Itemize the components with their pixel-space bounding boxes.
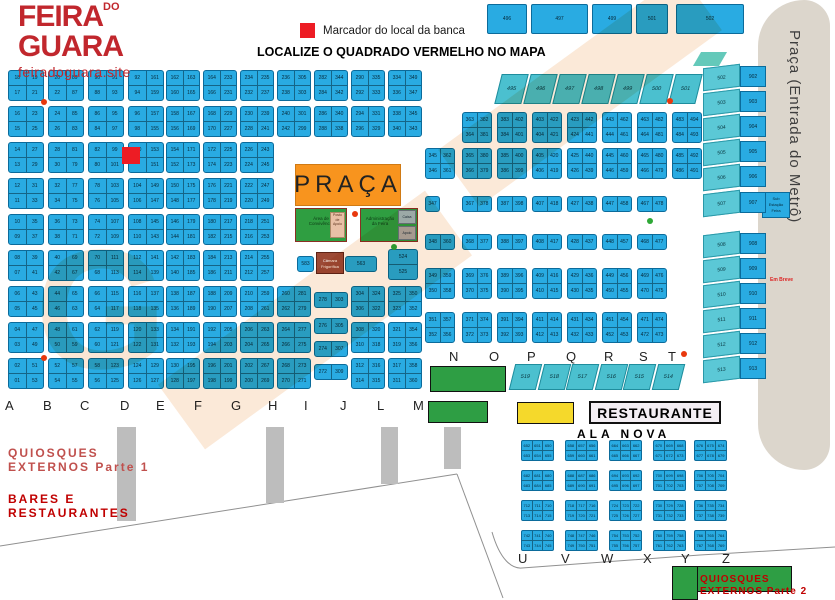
stall-cell[interactable]: 172 bbox=[204, 143, 220, 157]
stall-cell[interactable]: 329 bbox=[368, 122, 385, 136]
stall-cell[interactable]: 727 bbox=[630, 511, 641, 520]
stall-cell[interactable]: 312 bbox=[352, 359, 368, 373]
stall-cell[interactable]: 681 bbox=[532, 471, 543, 480]
stall-cell[interactable]: 83 bbox=[66, 122, 84, 136]
stall-cell[interactable]: 57 bbox=[66, 359, 84, 373]
stall-cell[interactable]: 467 bbox=[638, 197, 652, 211]
stall-cell[interactable]: 405 bbox=[533, 149, 547, 163]
stall-cell[interactable]: 680 bbox=[542, 471, 553, 480]
stall-cell[interactable]: 662 bbox=[630, 441, 641, 450]
stall-cell[interactable]: 53 bbox=[26, 374, 44, 388]
stall-cell[interactable]: 214 bbox=[241, 251, 257, 265]
stall-cell[interactable]: 728 bbox=[674, 501, 685, 510]
stall-cell[interactable]: 322 bbox=[368, 302, 385, 316]
stall-cell[interactable]: 342 bbox=[331, 86, 348, 100]
stall-cell[interactable]: 12 bbox=[9, 179, 26, 193]
stall-cell[interactable]: 338 bbox=[389, 107, 405, 121]
stall-cell[interactable]: 129 bbox=[146, 359, 164, 373]
stall-cell[interactable]: 56 bbox=[89, 374, 106, 388]
stall-cell[interactable]: 501 bbox=[636, 4, 668, 34]
stall-cell[interactable]: 41 bbox=[26, 266, 44, 280]
stall-cell[interactable]: 475 bbox=[652, 284, 667, 298]
stall-block[interactable]: 471474472473 bbox=[637, 312, 667, 343]
stall-cell[interactable]: 904 bbox=[740, 116, 766, 137]
stall-block[interactable]: 120133122131 bbox=[128, 322, 164, 353]
stall-cell[interactable]: 228 bbox=[241, 122, 257, 136]
stall-cell[interactable]: 196 bbox=[204, 359, 220, 373]
stall-cell[interactable]: 661 bbox=[586, 451, 597, 460]
stall-block[interactable]: 338345340343 bbox=[388, 106, 422, 137]
stall-cell[interactable]: 460 bbox=[617, 149, 632, 163]
stall-block[interactable]: 829980101 bbox=[88, 142, 124, 173]
stall-cell[interactable]: 44 bbox=[49, 287, 66, 301]
stall-block[interactable]: 180217182215 bbox=[203, 214, 237, 245]
stall-cell[interactable]: 484 bbox=[673, 128, 687, 142]
stall-cell[interactable]: 364 bbox=[463, 128, 477, 142]
stall-cell[interactable]: 671 bbox=[654, 451, 664, 460]
stall-cell[interactable]: 146 bbox=[167, 215, 183, 229]
stall-block[interactable]: 278303 bbox=[314, 292, 348, 308]
stall-cell[interactable]: 95 bbox=[106, 107, 124, 121]
stall-block[interactable]: 403422404421 bbox=[532, 112, 562, 143]
stall-cell[interactable]: 276 bbox=[315, 319, 331, 333]
stall-cell[interactable]: 700 bbox=[654, 471, 664, 480]
stall-block[interactable]: 694693692695696697 bbox=[609, 470, 642, 491]
stall-block[interactable]: 388397 bbox=[497, 234, 527, 250]
stall-cell[interactable]: 512 bbox=[703, 331, 740, 359]
stall-cell[interactable]: 167 bbox=[183, 107, 200, 121]
stall-cell[interactable]: 472 bbox=[638, 328, 652, 342]
stall-block[interactable]: 158167156169 bbox=[166, 106, 200, 137]
stall-block[interactable]: 485492486491 bbox=[672, 148, 702, 179]
stall-cell[interactable]: 524 bbox=[389, 250, 417, 264]
stall-cell[interactable]: 281 bbox=[294, 287, 311, 301]
stall-cell[interactable]: 29 bbox=[26, 158, 44, 172]
stall-cell[interactable]: 317 bbox=[389, 359, 405, 373]
stall-cell[interactable]: 694 bbox=[610, 471, 620, 480]
stall-cell[interactable]: 13 bbox=[9, 158, 26, 172]
stall-cell[interactable]: 907 bbox=[740, 192, 766, 213]
stall-cell[interactable]: 439 bbox=[582, 164, 597, 178]
stall-cell[interactable]: 741 bbox=[532, 531, 543, 540]
stall-cell[interactable]: 23 bbox=[26, 107, 44, 121]
stall-cell[interactable]: 505 bbox=[703, 139, 740, 167]
stall-cell[interactable]: 465 bbox=[638, 149, 652, 163]
stall-block[interactable]: 700699698701702703 bbox=[653, 470, 686, 491]
stall-block[interactable]: 86958497 bbox=[88, 106, 124, 137]
stall-cell[interactable]: 408 bbox=[533, 235, 547, 249]
stall-cell[interactable]: 288 bbox=[315, 122, 331, 136]
stall-block[interactable]: 349359350358 bbox=[425, 268, 455, 299]
stall-cell[interactable]: 448 bbox=[603, 235, 617, 249]
stall-cell[interactable]: 673 bbox=[674, 451, 685, 460]
stall-block[interactable]: 427438 bbox=[567, 196, 597, 212]
stall-block[interactable]: 104149106147 bbox=[128, 178, 164, 209]
site-url[interactable]: feiradoguara.site bbox=[18, 65, 131, 79]
stall-cell[interactable]: 389 bbox=[498, 269, 512, 283]
stall-cell[interactable]: 205 bbox=[220, 323, 237, 337]
stall-cell[interactable]: 380 bbox=[477, 149, 492, 163]
stall-cell[interactable]: 470 bbox=[638, 284, 652, 298]
stall-cell[interactable]: 708 bbox=[705, 481, 716, 490]
stall-cell[interactable]: 357 bbox=[440, 313, 455, 327]
stall-cell[interactable]: 716 bbox=[586, 501, 597, 510]
stall-cell[interactable]: 759 bbox=[664, 531, 675, 540]
stall-cell[interactable]: 674 bbox=[715, 441, 726, 450]
stall-cell[interactable]: 507 bbox=[703, 190, 740, 218]
stall-cell[interactable]: 215 bbox=[220, 230, 237, 244]
praca-block[interactable]: PRAÇA bbox=[295, 164, 401, 206]
stall-cell[interactable]: 324 bbox=[368, 287, 385, 301]
stall-cell[interactable]: 270 bbox=[278, 374, 294, 388]
stall-cell[interactable]: 119 bbox=[106, 323, 124, 337]
stall-cell[interactable]: 454 bbox=[617, 313, 632, 327]
stall-cell[interactable]: 60 bbox=[89, 338, 106, 352]
stall-block[interactable]: 9216194159 bbox=[128, 70, 164, 101]
stall-cell[interactable]: 217 bbox=[220, 215, 237, 229]
stall-cell[interactable]: 92 bbox=[129, 71, 146, 85]
stall-cell[interactable]: 410 bbox=[533, 284, 547, 298]
stall-block[interactable]: 5812356125 bbox=[88, 358, 124, 389]
stall-cell[interactable]: 350 bbox=[426, 284, 440, 298]
stall-cell[interactable]: 223 bbox=[220, 158, 237, 172]
stall-cell[interactable]: 188 bbox=[204, 287, 220, 301]
stall-block[interactable]: 712711710713714715 bbox=[521, 500, 554, 521]
stall-cell[interactable]: 687 bbox=[576, 471, 587, 480]
stall-cell[interactable]: 263 bbox=[257, 323, 274, 337]
stall-cell[interactable]: 207 bbox=[220, 302, 237, 316]
stall-cell[interactable]: 36 bbox=[49, 215, 66, 229]
stall-cell[interactable]: 451 bbox=[603, 313, 617, 327]
stall-cell[interactable]: 689 bbox=[566, 481, 576, 490]
stall-cell[interactable]: 71 bbox=[66, 230, 84, 244]
stall-cell[interactable]: 241 bbox=[257, 122, 274, 136]
stall-block[interactable]: 706705704707708709 bbox=[694, 470, 727, 491]
stall-cell[interactable]: 194 bbox=[204, 338, 220, 352]
stall-cell[interactable]: 226 bbox=[241, 143, 257, 157]
stall-cell[interactable]: 385 bbox=[498, 149, 512, 163]
stall-block[interactable]: 28813079 bbox=[48, 142, 84, 173]
stall-cell[interactable]: 336 bbox=[389, 86, 405, 100]
stall-cell[interactable]: 174 bbox=[204, 158, 220, 172]
stall-cell[interactable]: 387 bbox=[498, 197, 512, 211]
stall-cell[interactable]: 739 bbox=[715, 511, 726, 520]
stall-cell[interactable]: 701 bbox=[654, 481, 664, 490]
stall-cell[interactable]: 165 bbox=[183, 86, 200, 100]
stall-cell[interactable]: 743 bbox=[522, 541, 532, 550]
stall-cell[interactable]: 163 bbox=[183, 71, 200, 85]
stall-cell[interactable]: 140 bbox=[167, 266, 183, 280]
stall-cell[interactable]: 409 bbox=[533, 269, 547, 283]
stall-cell[interactable]: 360 bbox=[440, 235, 455, 249]
stall-cell[interactable]: 652 bbox=[522, 441, 532, 450]
stall-cell[interactable]: 347 bbox=[405, 86, 422, 100]
stall-cell[interactable]: 668 bbox=[674, 441, 685, 450]
stall-cell[interactable]: 767 bbox=[695, 541, 705, 550]
stall-block[interactable]: 7011168113 bbox=[88, 250, 124, 281]
stall-cell[interactable]: 445 bbox=[603, 149, 617, 163]
stall-block[interactable]: 365380366379 bbox=[462, 148, 492, 179]
stall-cell[interactable]: 88 bbox=[89, 86, 106, 100]
stall-cell[interactable]: 360 bbox=[405, 374, 422, 388]
stall-cell[interactable]: 390 bbox=[498, 284, 512, 298]
stall-cell[interactable]: 166 bbox=[204, 86, 220, 100]
stall-cell[interactable]: 398 bbox=[512, 197, 527, 211]
stall-cell[interactable]: 62 bbox=[89, 323, 106, 337]
stall-cell[interactable]: 177 bbox=[183, 194, 200, 208]
stall-block[interactable]: 124129126127 bbox=[128, 358, 164, 389]
stall-cell[interactable]: 686 bbox=[586, 471, 597, 480]
stall-block[interactable]: 206263204265 bbox=[240, 322, 274, 353]
stall-cell[interactable]: 352 bbox=[405, 302, 422, 316]
stall-cell[interactable]: 46 bbox=[49, 302, 66, 316]
stall-cell[interactable]: 79 bbox=[66, 158, 84, 172]
stall-block[interactable]: 282344284342 bbox=[314, 70, 348, 101]
stall-cell[interactable]: 347 bbox=[426, 197, 439, 211]
stall-cell[interactable]: 164 bbox=[204, 71, 220, 85]
stall-block[interactable]: 04470349 bbox=[8, 322, 44, 353]
stall-cell[interactable]: 706 bbox=[695, 471, 705, 480]
stall-cell[interactable]: 07 bbox=[9, 266, 26, 280]
stall-cell[interactable]: 93 bbox=[106, 86, 124, 100]
stall-cell[interactable]: 481 bbox=[652, 128, 667, 142]
stall-cell[interactable]: 182 bbox=[204, 230, 220, 244]
stall-block[interactable]: 06430545 bbox=[8, 286, 44, 317]
stall-cell[interactable]: 381 bbox=[477, 128, 492, 142]
stall-block[interactable]: 48615059 bbox=[48, 322, 84, 353]
stall-cell[interactable]: 230 bbox=[241, 107, 257, 121]
stall-cell[interactable]: 703 bbox=[674, 481, 685, 490]
stall-cell[interactable]: 377 bbox=[477, 235, 492, 249]
stall-block[interactable]: 429436430435 bbox=[567, 268, 597, 299]
stall-cell[interactable]: 468 bbox=[638, 235, 652, 249]
stall-cell[interactable]: 412 bbox=[533, 328, 547, 342]
stall-cell[interactable]: 493 bbox=[687, 128, 702, 142]
stall-cell[interactable]: 499 bbox=[592, 4, 632, 34]
stall-cell[interactable]: 729 bbox=[664, 501, 675, 510]
stall-cell[interactable]: 902 bbox=[740, 66, 766, 87]
stall-block[interactable]: 369376370375 bbox=[462, 268, 492, 299]
stall-cell[interactable]: 94 bbox=[129, 86, 146, 100]
stall-cell[interactable]: 421 bbox=[547, 128, 562, 142]
stall-cell[interactable]: 96 bbox=[129, 107, 146, 121]
stall-cell[interactable]: 247 bbox=[257, 179, 274, 193]
stall-cell[interactable]: 744 bbox=[532, 541, 543, 550]
stall-cell[interactable]: 235 bbox=[257, 71, 274, 85]
stall-cell[interactable]: 201 bbox=[220, 359, 237, 373]
stall-block[interactable]: 226243224245 bbox=[240, 142, 274, 173]
stall-cell[interactable]: 306 bbox=[352, 302, 368, 316]
stall-cell[interactable]: 30 bbox=[49, 158, 66, 172]
stall-cell[interactable]: 457 bbox=[617, 235, 632, 249]
stall-block[interactable]: 12311133 bbox=[8, 178, 44, 209]
stall-cell[interactable]: 68 bbox=[89, 266, 106, 280]
stall-block[interactable]: 664663662665666667 bbox=[609, 440, 642, 461]
stall-cell[interactable]: 35 bbox=[26, 215, 44, 229]
stall-cell[interactable]: 204 bbox=[241, 338, 257, 352]
stall-cell[interactable]: 113 bbox=[106, 266, 124, 280]
stall-cell[interactable]: 720 bbox=[576, 511, 587, 520]
stall-block[interactable]: 670669668671672673 bbox=[653, 440, 686, 461]
stall-cell[interactable]: 292 bbox=[352, 86, 368, 100]
stall-block[interactable]: 325350323352 bbox=[388, 286, 422, 317]
stall-cell[interactable]: 253 bbox=[257, 230, 274, 244]
stall-cell[interactable]: 274 bbox=[315, 342, 331, 356]
stall-cell[interactable]: 766 bbox=[695, 531, 705, 540]
stall-block[interactable]: 36733871 bbox=[48, 214, 84, 245]
stall-cell[interactable]: 371 bbox=[463, 313, 477, 327]
stall-cell[interactable]: 321 bbox=[389, 323, 405, 337]
stall-cell[interactable]: 112 bbox=[129, 251, 146, 265]
stall-cell[interactable]: 66 bbox=[89, 287, 106, 301]
stall-block[interactable]: 236305238303 bbox=[277, 70, 311, 101]
facility-gray-2[interactable]: Apoio bbox=[398, 226, 416, 240]
stall-cell[interactable]: 486 bbox=[673, 164, 687, 178]
stall-cell[interactable]: 286 bbox=[315, 107, 331, 121]
stall-cell[interactable]: 358 bbox=[405, 359, 422, 373]
stall-block[interactable]: 214255212257 bbox=[240, 250, 274, 281]
stall-cell[interactable]: 234 bbox=[241, 71, 257, 85]
stall-block[interactable]: 736735734737738739 bbox=[694, 500, 727, 521]
cold-room-box[interactable]: Câmara Frigorífica bbox=[316, 252, 344, 274]
stall-cell[interactable]: 145 bbox=[146, 215, 164, 229]
stall-cell[interactable]: 331 bbox=[368, 107, 385, 121]
stall-block[interactable]: 405420406419 bbox=[532, 148, 562, 179]
stall-cell[interactable]: 503 bbox=[703, 89, 740, 117]
stall-cell[interactable]: 400 bbox=[512, 149, 527, 163]
stall-cell[interactable]: 148 bbox=[167, 194, 183, 208]
stall-cell[interactable]: 394 bbox=[512, 313, 527, 327]
stall-cell[interactable]: 184 bbox=[204, 251, 220, 265]
stall-cell[interactable]: 80 bbox=[89, 158, 106, 172]
stall-cell[interactable]: 203 bbox=[220, 338, 237, 352]
stall-cell[interactable]: 750 bbox=[576, 541, 587, 550]
stall-cell[interactable]: 416 bbox=[547, 269, 562, 283]
stall-block[interactable]: 10350937 bbox=[8, 214, 44, 245]
stall-cell[interactable]: 261 bbox=[257, 302, 274, 316]
stall-block[interactable]: 425440426439 bbox=[567, 148, 597, 179]
stall-cell[interactable]: 399 bbox=[512, 164, 527, 178]
stall-cell[interactable]: 425 bbox=[568, 149, 582, 163]
stall-cell[interactable]: 721 bbox=[586, 511, 597, 520]
stall-block[interactable]: 407418 bbox=[532, 196, 562, 212]
stall-cell[interactable]: 678 bbox=[705, 451, 716, 460]
green-feature-rect[interactable] bbox=[672, 566, 698, 600]
stall-cell[interactable]: 69 bbox=[66, 251, 84, 265]
stall-cell[interactable]: 213 bbox=[220, 251, 237, 265]
stall-block[interactable]: 363382364381 bbox=[462, 112, 492, 143]
stall-cell[interactable]: 192 bbox=[204, 323, 220, 337]
stall-cell[interactable]: 752 bbox=[630, 531, 641, 540]
stall-cell[interactable]: 731 bbox=[654, 511, 664, 520]
stall-cell[interactable]: 413 bbox=[547, 328, 562, 342]
stall-block[interactable]: 563 bbox=[345, 256, 377, 272]
stall-cell[interactable]: 428 bbox=[568, 235, 582, 249]
stall-cell[interactable]: 17 bbox=[9, 86, 26, 100]
stall-cell[interactable]: 137 bbox=[146, 287, 164, 301]
stall-block[interactable]: 268273270271 bbox=[277, 358, 311, 389]
stall-cell[interactable]: 719 bbox=[566, 511, 576, 520]
stall-cell[interactable]: 688 bbox=[566, 471, 576, 480]
stall-cell[interactable]: 47 bbox=[26, 323, 44, 337]
stall-cell[interactable]: 216 bbox=[241, 230, 257, 244]
stall-cell[interactable]: 698 bbox=[674, 471, 685, 480]
stall-cell[interactable]: 711 bbox=[532, 501, 543, 510]
stall-cell[interactable]: 127 bbox=[146, 374, 164, 388]
stall-cell[interactable]: 65 bbox=[66, 287, 84, 301]
stall-cell[interactable]: 133 bbox=[146, 323, 164, 337]
stall-cell[interactable]: 21 bbox=[26, 86, 44, 100]
stall-block[interactable]: 389396390395 bbox=[497, 268, 527, 299]
stall-block[interactable]: 583 bbox=[297, 256, 314, 272]
stall-block[interactable]: 411414412413 bbox=[532, 312, 562, 343]
stall-cell[interactable]: 265 bbox=[257, 338, 274, 352]
stall-cell[interactable]: 483 bbox=[673, 113, 687, 127]
stall-cell[interactable]: 691 bbox=[586, 481, 597, 490]
stall-cell[interactable]: 05 bbox=[9, 302, 26, 316]
stall-cell[interactable]: 124 bbox=[129, 359, 146, 373]
stall-block[interactable]: 345362346361 bbox=[425, 148, 455, 179]
stall-cell[interactable]: 905 bbox=[740, 141, 766, 162]
stall-cell[interactable]: 277 bbox=[294, 323, 311, 337]
stall-cell[interactable]: 152 bbox=[167, 158, 183, 172]
stall-cell[interactable]: 97 bbox=[106, 122, 124, 136]
stall-cell[interactable]: 240 bbox=[278, 107, 294, 121]
stall-block[interactable]: 108145110143 bbox=[128, 214, 164, 245]
stall-cell[interactable]: 651 bbox=[532, 441, 543, 450]
stall-block[interactable]: 7810376105 bbox=[88, 178, 124, 209]
stall-cell[interactable]: 373 bbox=[477, 328, 492, 342]
stall-block[interactable]: 112141114139 bbox=[128, 250, 164, 281]
stall-cell[interactable]: 345 bbox=[426, 149, 440, 163]
stall-cell[interactable]: 134 bbox=[167, 323, 183, 337]
stall-cell[interactable]: 175 bbox=[183, 179, 200, 193]
stall-cell[interactable]: 236 bbox=[278, 71, 294, 85]
stall-cell[interactable]: 755 bbox=[610, 541, 620, 550]
stall-cell[interactable]: 707 bbox=[695, 481, 705, 490]
stall-cell[interactable]: 308 bbox=[352, 323, 368, 337]
stall-cell[interactable]: 04 bbox=[9, 323, 26, 337]
stall-cell[interactable]: 224 bbox=[241, 158, 257, 172]
stall-cell[interactable]: 446 bbox=[603, 164, 617, 178]
stall-cell[interactable]: 307 bbox=[331, 342, 348, 356]
stall-cell[interactable]: 350 bbox=[405, 287, 422, 301]
stall-cell[interactable]: 664 bbox=[610, 441, 620, 450]
stall-cell[interactable]: 266 bbox=[278, 338, 294, 352]
stall-cell[interactable]: 85 bbox=[66, 107, 84, 121]
red-location-marker[interactable] bbox=[122, 147, 140, 164]
stall-block[interactable]: 383402384401 bbox=[497, 112, 527, 143]
stall-cell[interactable]: 123 bbox=[106, 359, 124, 373]
stall-cell[interactable]: 227 bbox=[220, 122, 237, 136]
stall-cell[interactable]: 138 bbox=[167, 287, 183, 301]
stall-cell[interactable]: 260 bbox=[278, 287, 294, 301]
stall-cell[interactable]: 415 bbox=[547, 284, 562, 298]
stall-cell[interactable]: 58 bbox=[89, 359, 106, 373]
stall-cell[interactable]: 125 bbox=[106, 374, 124, 388]
stall-cell[interactable]: 908 bbox=[740, 233, 766, 254]
stall-block[interactable]: 202267200269 bbox=[240, 358, 274, 389]
stall-block[interactable]: 130195128197 bbox=[166, 358, 200, 389]
stall-cell[interactable]: 40 bbox=[49, 251, 66, 265]
stall-cell[interactable]: 197 bbox=[183, 374, 200, 388]
stall-cell[interactable]: 444 bbox=[603, 128, 617, 142]
stall-cell[interactable]: 906 bbox=[740, 166, 766, 187]
stall-block[interactable]: 7410772109 bbox=[88, 214, 124, 245]
stall-block[interactable]: 154171152173 bbox=[166, 142, 200, 173]
stall-cell[interactable]: 338 bbox=[331, 122, 348, 136]
stall-cell[interactable]: 136 bbox=[167, 302, 183, 316]
